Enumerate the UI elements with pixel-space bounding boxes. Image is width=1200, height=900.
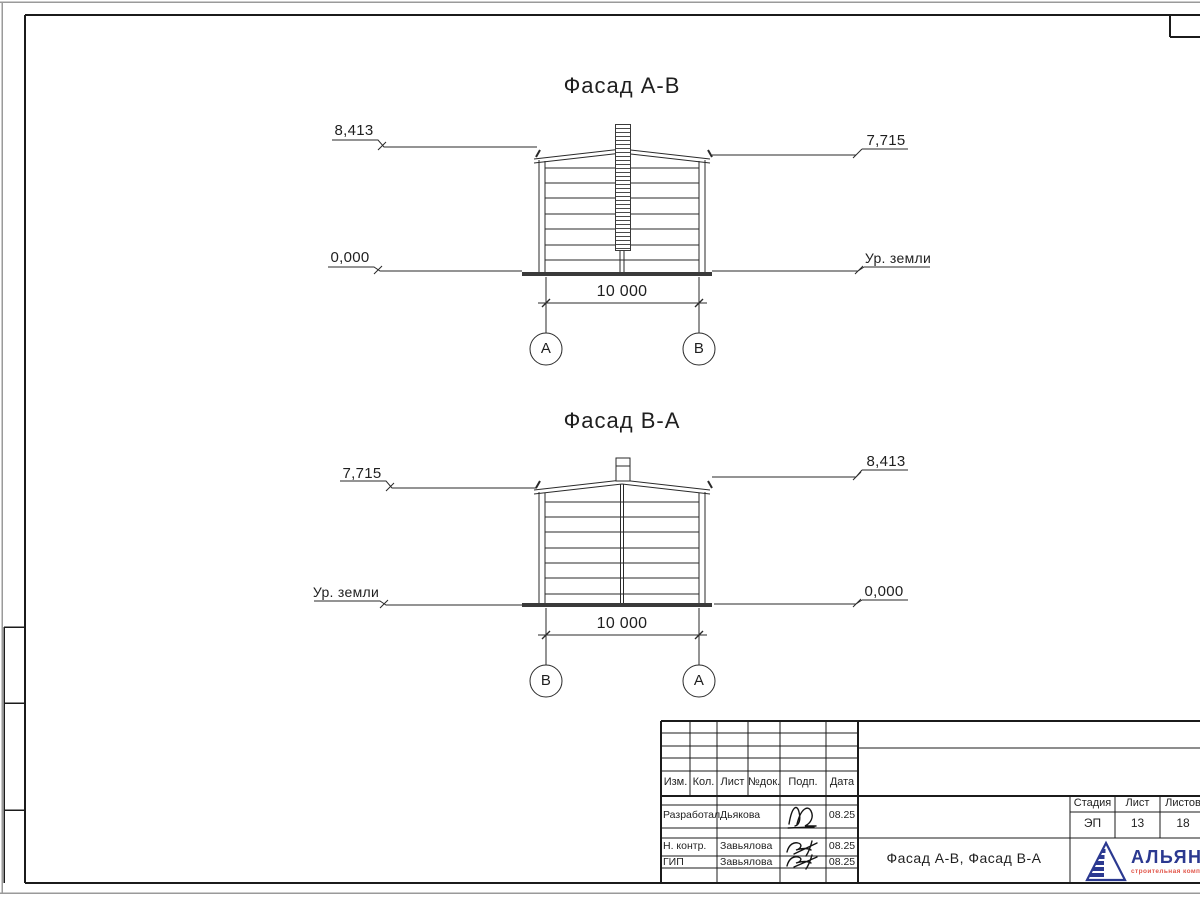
frame [25, 15, 1200, 883]
tb-col-izm: Изм. [661, 777, 690, 789]
facade-1-elev-left-bottom: 0,000 [324, 250, 376, 266]
facade-1-axis-left-label: А [536, 341, 556, 357]
tb-row-date: 08.25 [826, 810, 858, 821]
drawing-linework [0, 0, 1200, 900]
facade-1-base [522, 272, 712, 276]
facade-2-axis-left-label: В [536, 673, 556, 689]
tb-col-kol: Кол. [690, 777, 717, 789]
tb-col-podp: Подп. [780, 777, 826, 789]
tb-row-name: Дьякова [720, 810, 778, 821]
facade-1-elev-leader-right-top [712, 149, 908, 158]
tb-row-name: Завьялова [720, 841, 778, 852]
facade-2-elev-left-top: 7,715 [336, 466, 388, 482]
tb-col-data: Дата [826, 777, 858, 789]
frame-corner-box [1170, 15, 1200, 37]
signature-nkontr [787, 841, 817, 856]
tb-doc-title: Фасад А-В, Фасад В-А [862, 851, 1066, 866]
tb-sheet-label: Лист [1115, 798, 1160, 810]
tb-row-date: 08.25 [826, 841, 858, 852]
tb-row-role: ГИП [663, 857, 717, 868]
facade-1-title: Фасад А-В [560, 74, 684, 97]
company-name: АЛЬЯНС [1131, 848, 1200, 867]
tb-col-list: Лист [717, 777, 748, 789]
tb-sheets-value: 18 [1160, 817, 1200, 830]
facade-2-chimney [616, 458, 630, 481]
facade-1-dimension-label: 10 000 [586, 284, 658, 301]
facade-2-ground-label: Ур. земли [310, 585, 382, 600]
facade-2-drawing [314, 458, 908, 697]
signature-gip [787, 855, 817, 869]
facade-1-elev-right-top: 7,715 [860, 133, 912, 149]
facade-1-elev-left-top: 8,413 [328, 123, 380, 139]
facade-2-dimension-label: 10 000 [586, 616, 658, 633]
tb-stage-label: Стадия [1070, 798, 1115, 810]
facade-2-axis-right-label: А [689, 673, 709, 689]
facade-2-elev-leader-left-bottom [314, 600, 522, 608]
facade-1-elev-leader-right-bottom [712, 266, 930, 274]
tb-stage-value: ЭП [1070, 817, 1115, 830]
facade-2-elev-leader-left-top [340, 481, 537, 491]
facade-1-elev-leader-left-bottom [328, 266, 522, 274]
facade-2-elev-leader-right-top [712, 470, 908, 480]
facade-2-title: Фасад В-А [560, 409, 684, 432]
drawing-sheet: Фасад А-В 8,413 7,715 0,000 Ур. земли 10… [0, 0, 1200, 900]
tb-col-ndok: №док. [748, 777, 780, 789]
tb-sheet-value: 13 [1115, 817, 1160, 830]
company-tagline: строительная компания [1131, 869, 1200, 876]
tb-row-role: Разработал [663, 810, 717, 821]
company-logo-icon [1087, 843, 1125, 880]
facade-2-elev-leader-right-bottom [714, 599, 908, 607]
facade-1-axis-right-label: В [689, 341, 709, 357]
tb-row-name: Завьялова [720, 857, 778, 868]
tb-sheets-label: Листов [1160, 798, 1200, 810]
sheet-edge-lines [0, 2, 1200, 893]
facade-1-ladder [615, 124, 631, 251]
facade-1-ground-label: Ур. земли [862, 251, 934, 266]
facade-2-elev-right-top: 8,413 [860, 454, 912, 470]
facade-2-elev-right-bottom: 0,000 [858, 584, 910, 600]
facade-2-base [522, 603, 712, 607]
tb-row-role: Н. контр. [663, 841, 717, 852]
left-margin-boxes [4, 627, 25, 883]
signature-razrabotal [788, 808, 816, 828]
facade-1-elev-leader-left-top [332, 140, 537, 150]
tb-row-date: 08.25 [826, 857, 858, 868]
